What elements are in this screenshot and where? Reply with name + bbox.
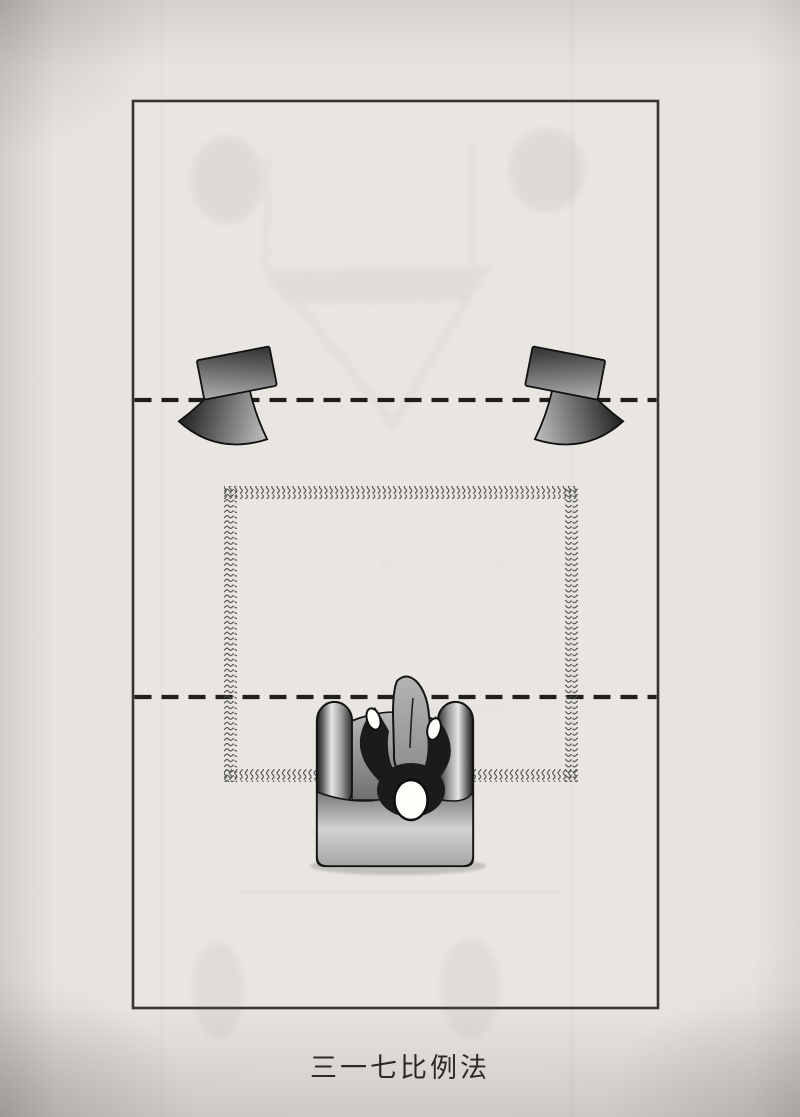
rug-fringe-top	[224, 486, 578, 499]
bleed-band	[262, 266, 492, 304]
figure-caption: 三一七比例法	[0, 1046, 800, 1085]
rug-fringe-left	[224, 486, 237, 782]
person-head	[395, 780, 428, 820]
figure-canvas	[0, 0, 800, 1117]
page-crease-left	[160, 0, 163, 1117]
bleed-blob-top-left	[191, 136, 263, 224]
bleed-hline	[240, 890, 560, 894]
bleed-blob-bottom-left	[192, 942, 244, 1038]
rug-fringe-right	[565, 486, 578, 782]
bleed-blob-bottom-right	[440, 938, 500, 1038]
figure: 三一七比例法	[0, 0, 800, 1117]
chair-armrest-left	[317, 702, 352, 804]
